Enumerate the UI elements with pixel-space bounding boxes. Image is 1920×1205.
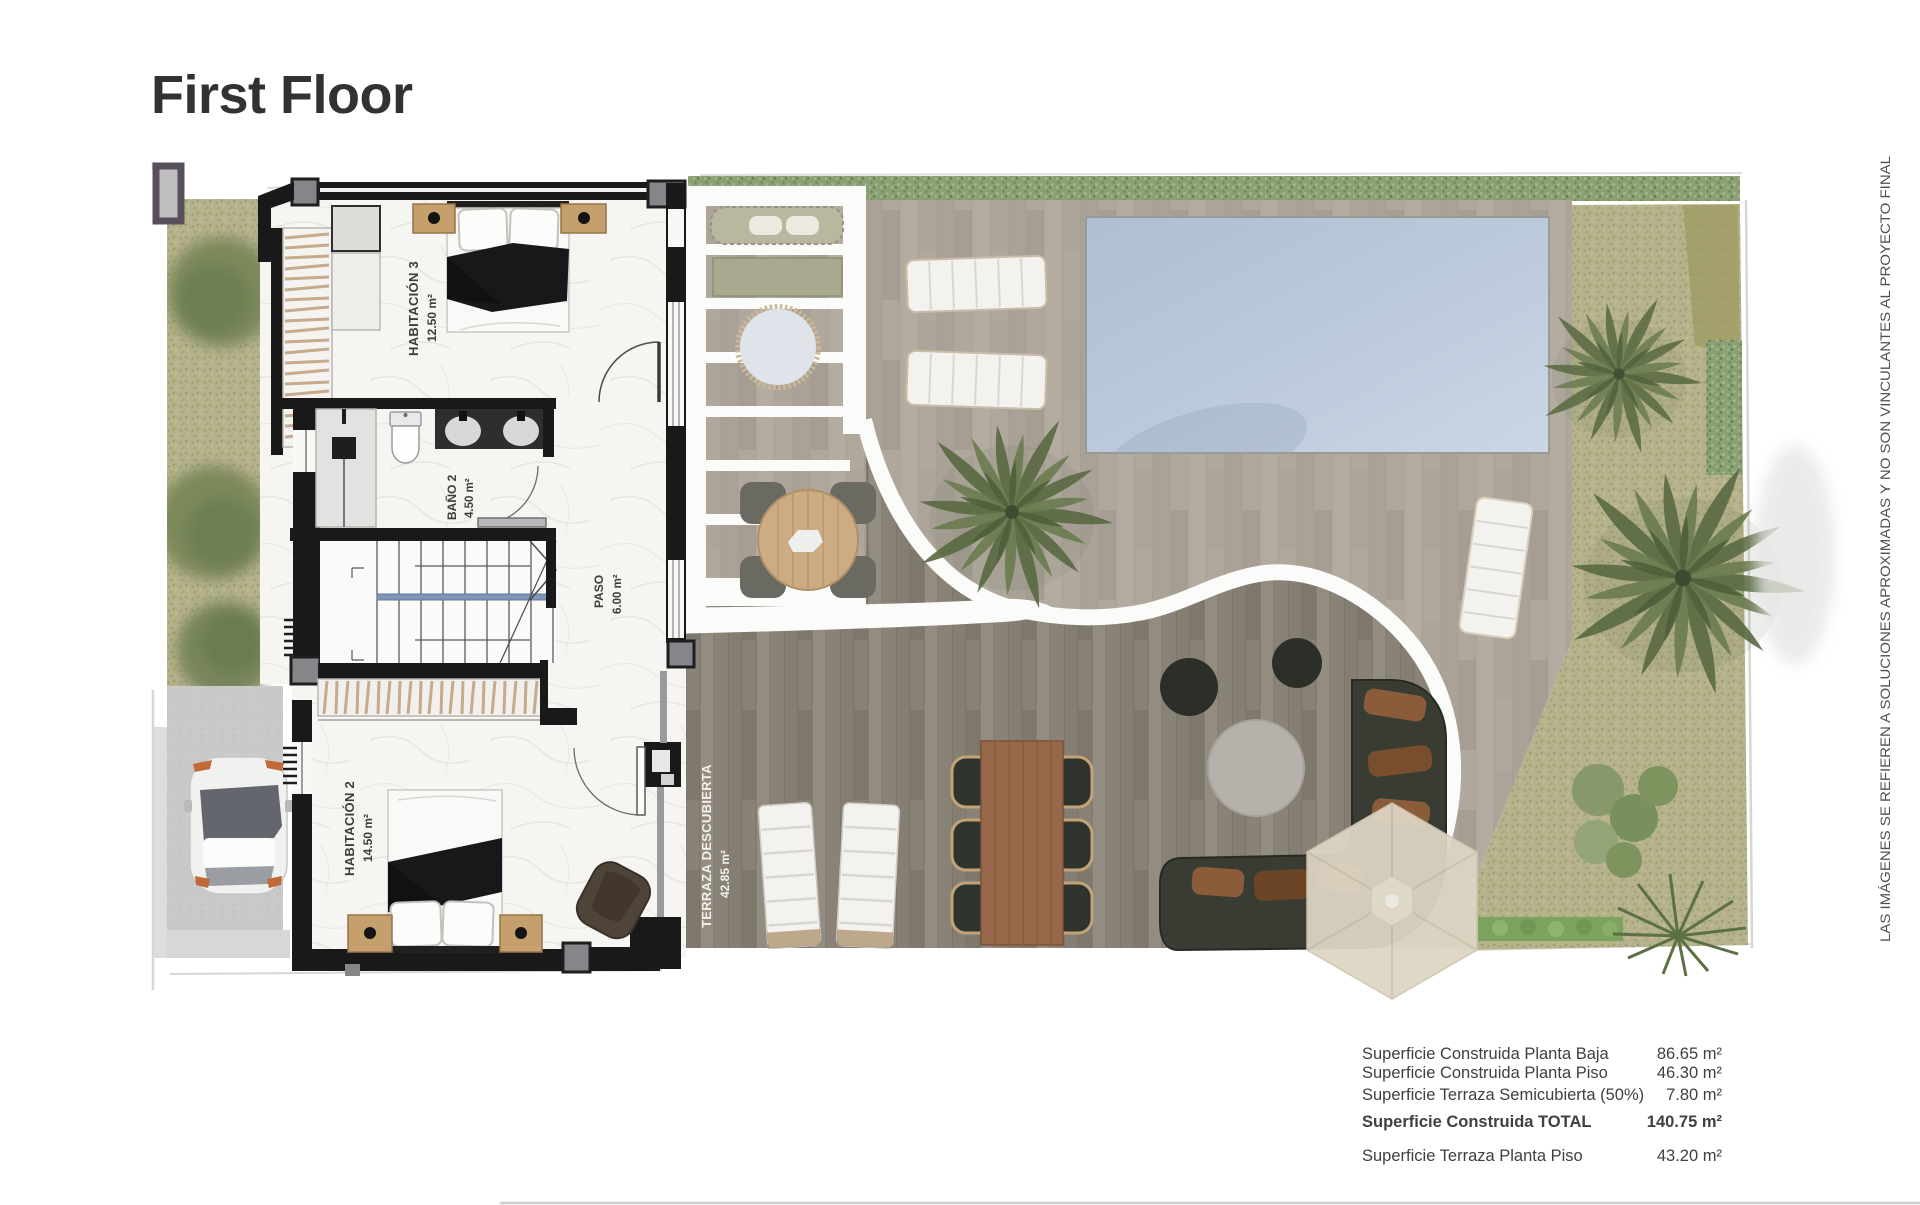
svg-text:HABITACIÓN 2: HABITACIÓN 2 [342,781,357,876]
svg-text:HABITACIÓN 3: HABITACIÓN 3 [406,261,421,356]
svg-text:43.20 m²: 43.20 m² [1657,1147,1723,1165]
svg-text:46.30 m²: 46.30 m² [1657,1064,1723,1082]
svg-text:42.85 m²: 42.85 m² [718,850,732,898]
svg-text:Superficie Construida Planta B: Superficie Construida Planta Baja [1362,1045,1610,1063]
svg-text:7.80 m²: 7.80 m² [1666,1086,1722,1104]
svg-text:Superficie Terraza Semicubiert: Superficie Terraza Semicubierta (50%) [1362,1086,1644,1104]
svg-text:4.50 m²: 4.50 m² [464,478,476,518]
svg-text:Superficie Construida TOTAL: Superficie Construida TOTAL [1362,1113,1592,1131]
svg-text:LAS IMÁGENES SE REFIEREN A SOL: LAS IMÁGENES SE REFIEREN A SOLUCIONES AP… [1878,155,1893,942]
svg-text:TERRAZA DESCUBIERTA: TERRAZA DESCUBIERTA [699,764,714,928]
svg-text:140.75 m²: 140.75 m² [1647,1113,1723,1131]
svg-text:86.65 m²: 86.65 m² [1657,1045,1723,1063]
svg-text:Superficie Terraza Planta Piso: Superficie Terraza Planta Piso [1362,1147,1583,1165]
svg-text:14.50 m²: 14.50 m² [361,814,375,862]
svg-text:PASO: PASO [592,575,606,608]
svg-text:6.00 m²: 6.00 m² [612,574,624,614]
svg-text:Superficie Construida Planta P: Superficie Construida Planta Piso [1362,1064,1608,1082]
svg-text:BAÑO 2: BAÑO 2 [444,474,459,520]
svg-text:First Floor: First Floor [151,65,413,125]
svg-text:12.50 m²: 12.50 m² [425,294,439,342]
